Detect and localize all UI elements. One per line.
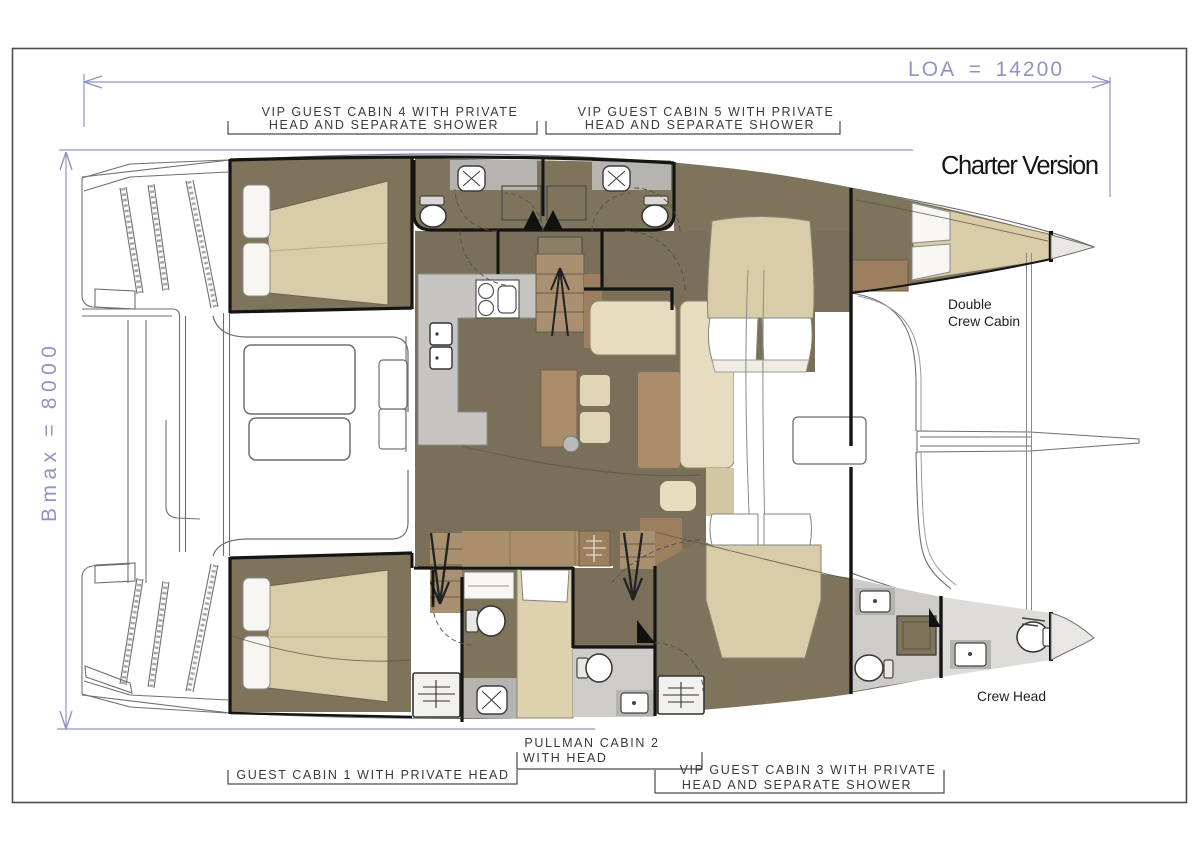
svg-text:Bmax = 8000: Bmax = 8000	[38, 342, 61, 522]
svg-text:VIP GUEST CABIN 3 WITH PRIVATE: VIP GUEST CABIN 3 WITH PRIVATE	[680, 763, 937, 777]
svg-text:WITH HEAD: WITH HEAD	[523, 751, 608, 765]
svg-text:Double: Double	[948, 297, 992, 312]
svg-text:LOA = 14200: LOA = 14200	[908, 58, 1066, 81]
svg-text:HEAD AND SEPARATE SHOWER: HEAD AND SEPARATE SHOWER	[682, 778, 912, 792]
svg-text:GUEST CABIN 1 WITH PRIVATE HEA: GUEST CABIN 1 WITH PRIVATE HEAD	[236, 768, 509, 782]
svg-text:VIP GUEST CABIN 5 WITH PRIVATE: VIP GUEST CABIN 5 WITH PRIVATE	[578, 105, 835, 119]
svg-text:VIP GUEST CABIN 4 WITH PRIVATE: VIP GUEST CABIN 4 WITH PRIVATE	[262, 105, 519, 119]
svg-text:Crew Head: Crew Head	[977, 689, 1046, 704]
svg-text:PULLMAN CABIN 2: PULLMAN CABIN 2	[524, 736, 659, 750]
svg-text:HEAD AND SEPARATE SHOWER: HEAD AND SEPARATE SHOWER	[585, 118, 815, 132]
svg-text:Crew Cabin: Crew Cabin	[948, 314, 1020, 329]
svg-text:Charter Version: Charter Version	[941, 152, 1099, 180]
svg-text:HEAD AND SEPARATE SHOWER: HEAD AND SEPARATE SHOWER	[269, 118, 499, 132]
